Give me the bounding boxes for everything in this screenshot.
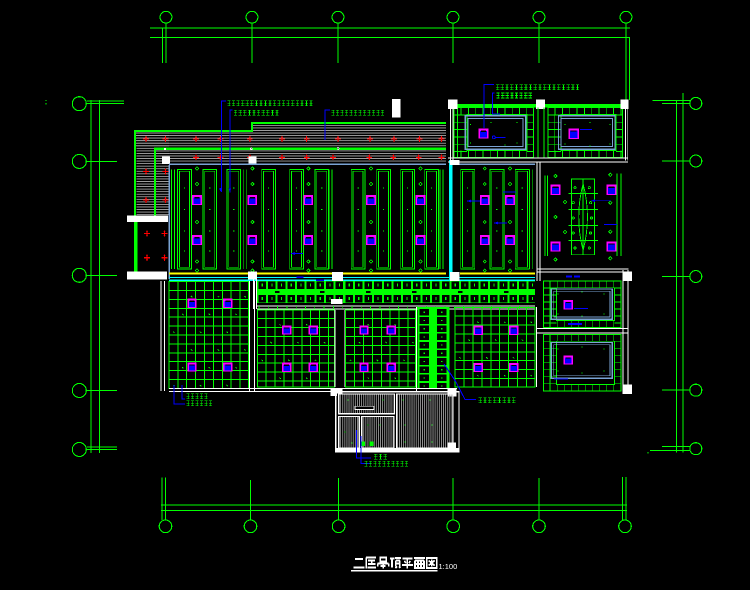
svg-text:1:100: 1:100 <box>439 562 458 571</box>
